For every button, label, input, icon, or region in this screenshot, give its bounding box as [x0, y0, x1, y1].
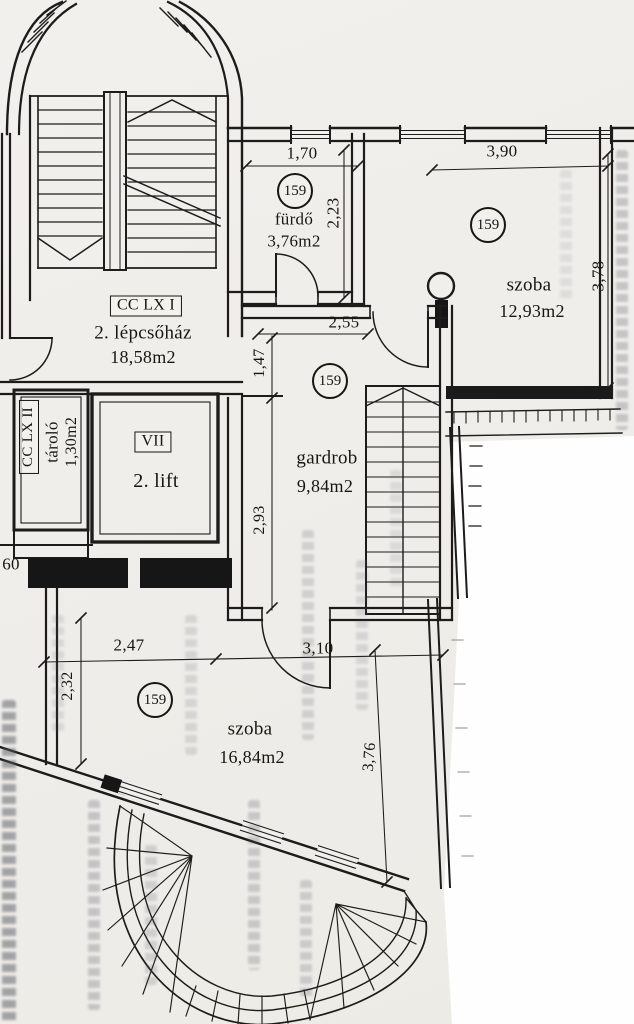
dim-label-szoba-felso-melyseg: 3,78	[590, 261, 607, 292]
room-label-szoba-felso: szoba	[507, 276, 552, 295]
area-label-furdo: 3,76m2	[267, 233, 320, 250]
room-code-lepcsohaz: CC LX I	[110, 296, 182, 317]
dim-label-bal-oldal: 60	[2, 556, 20, 573]
dim-label-gardrob-also: 2,93	[252, 505, 268, 534]
dim-label-gardrob-felso: 1,47	[252, 348, 268, 377]
unit-badge-szoba-felso: 159	[470, 207, 506, 243]
room-label-furdo: fürdő	[275, 211, 313, 228]
room-code-tarolo: CC LX II	[19, 400, 39, 474]
dim-label-furdo-szelesseg: 1,70	[287, 145, 318, 162]
dim-label-szoba-also-bal-melyseg: 2,32	[60, 671, 76, 700]
area-label-tarolo: 1,30m2	[64, 417, 80, 467]
dim-label-furdo-melyseg: 2,23	[325, 198, 342, 229]
area-label-szoba-felso: 12,93m2	[499, 302, 565, 320]
dim-label-gardrob-szelesseg: 2,55	[329, 314, 360, 331]
area-label-gardrob: 9,84m2	[297, 477, 353, 495]
room-label-szoba-also: szoba	[228, 720, 273, 739]
area-label-lepcsohaz: 18,58m2	[110, 348, 176, 366]
room-label-gardrob: gardrob	[296, 449, 357, 468]
unit-badge-furdo: 159	[277, 173, 313, 209]
unit-badge-gardrob: 159	[312, 363, 348, 399]
room-label-tarolo: tároló	[44, 421, 61, 462]
floorplan-canvas: CC LX I 2. lépcsőház 18,58m2 CC LX II tá…	[0, 0, 634, 1024]
dim-label-szoba-also-jobb: 3,10	[303, 640, 334, 657]
dim-label-szoba-felso-szelesseg: 3,90	[487, 143, 518, 160]
room-label-lepcsohaz: 2. lépcsőház	[94, 324, 192, 343]
room-code-lift: VII	[134, 432, 171, 453]
area-label-szoba-also: 16,84m2	[219, 748, 285, 766]
dim-label-szoba-also-jobb-melyseg: 3,76	[361, 742, 379, 772]
scan-cutout-region	[444, 436, 634, 1024]
unit-badge-szoba-also: 159	[137, 682, 173, 718]
dim-label-szoba-also-bal: 2,47	[114, 637, 145, 654]
room-label-lift: 2. lift	[133, 471, 178, 491]
